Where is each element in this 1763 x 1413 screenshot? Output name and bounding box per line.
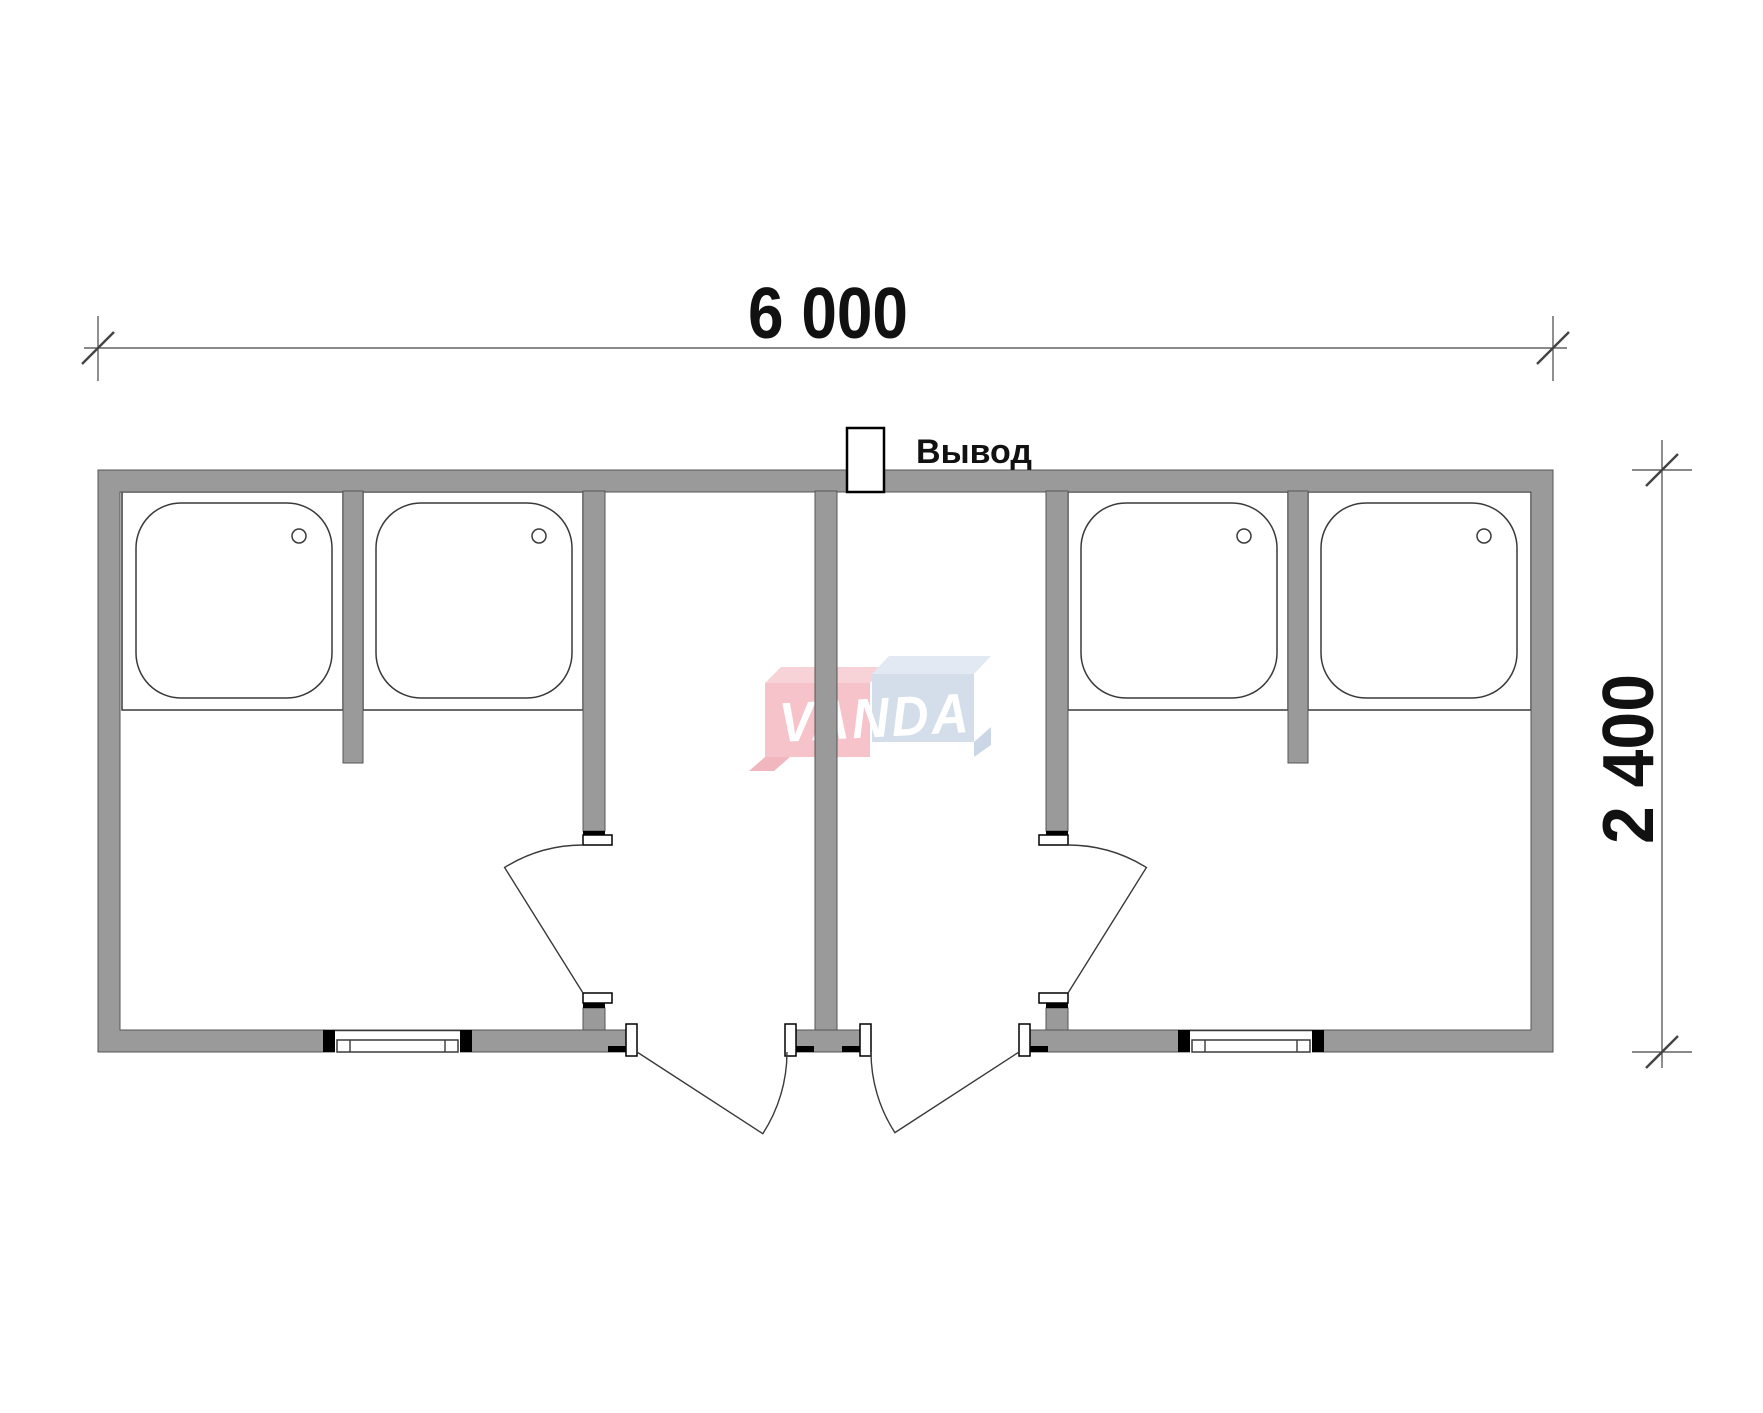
drain-icon-2	[532, 529, 546, 543]
ext-door-right-cap-b	[1030, 1046, 1048, 1052]
interior-wall-left	[583, 491, 605, 831]
int-door-right-jamb-top	[1039, 835, 1068, 845]
drain-icon-1	[292, 529, 306, 543]
shower-divider-right	[1288, 491, 1308, 763]
watermark-red-side-face	[749, 757, 790, 771]
shower-divider-left	[343, 491, 363, 763]
floor-plan-page: VANDA	[0, 0, 1763, 1413]
outlet-stub-box	[847, 428, 884, 492]
dim-height-label: 2 400	[1589, 674, 1669, 844]
outlet-label: Вывод	[916, 433, 1032, 471]
ext-door-right-jamb-b	[1019, 1024, 1030, 1056]
window-left-cap-a	[323, 1030, 335, 1052]
window-left-frame	[337, 1040, 458, 1052]
dim-width-label: 6 000	[748, 274, 908, 354]
ext-door-right-cap-a	[842, 1046, 860, 1052]
central-partition-wall	[815, 491, 837, 1030]
int-door-left-jamb-top	[583, 835, 612, 845]
vanda-watermark: VANDA	[749, 656, 991, 771]
interior-door-left-swing	[505, 845, 583, 993]
drain-icon-3	[1237, 529, 1251, 543]
dimension-width: 6 000	[82, 274, 1569, 381]
exterior-door-left-swing	[637, 1052, 787, 1134]
window-right-cap-a	[1178, 1030, 1190, 1052]
floor-plan-drawing: VANDA	[0, 0, 1763, 1413]
int-door-right-jamb-bottom	[1039, 993, 1068, 1003]
door-opening-left	[637, 1029, 785, 1054]
interior-wall-right	[1046, 491, 1068, 831]
interior-wall-left-stub	[583, 1008, 605, 1030]
exterior-door-right-swing	[871, 1052, 1019, 1133]
int-door-left-jamb-bottom	[583, 993, 612, 1003]
window-right-cap-b	[1312, 1030, 1324, 1052]
watermark-blue-side-face	[974, 727, 991, 757]
watermark-blue-top-face	[872, 656, 991, 674]
ext-door-left-cap-a	[608, 1046, 626, 1052]
window-left-cap-b	[460, 1030, 472, 1052]
interior-wall-right-stub	[1046, 1008, 1068, 1030]
ext-door-left-cap-b	[796, 1046, 814, 1052]
ext-door-right-jamb-a	[860, 1024, 871, 1056]
window-right-frame	[1192, 1040, 1310, 1052]
ext-door-left-jamb-b	[785, 1024, 796, 1056]
door-opening-right	[871, 1029, 1019, 1054]
interior-door-right-swing	[1068, 845, 1146, 993]
dimension-height: 2 400	[1589, 440, 1692, 1068]
drain-icon-4	[1477, 529, 1491, 543]
watermark-text: VANDA	[777, 681, 972, 754]
ext-door-left-jamb-a	[626, 1024, 637, 1056]
